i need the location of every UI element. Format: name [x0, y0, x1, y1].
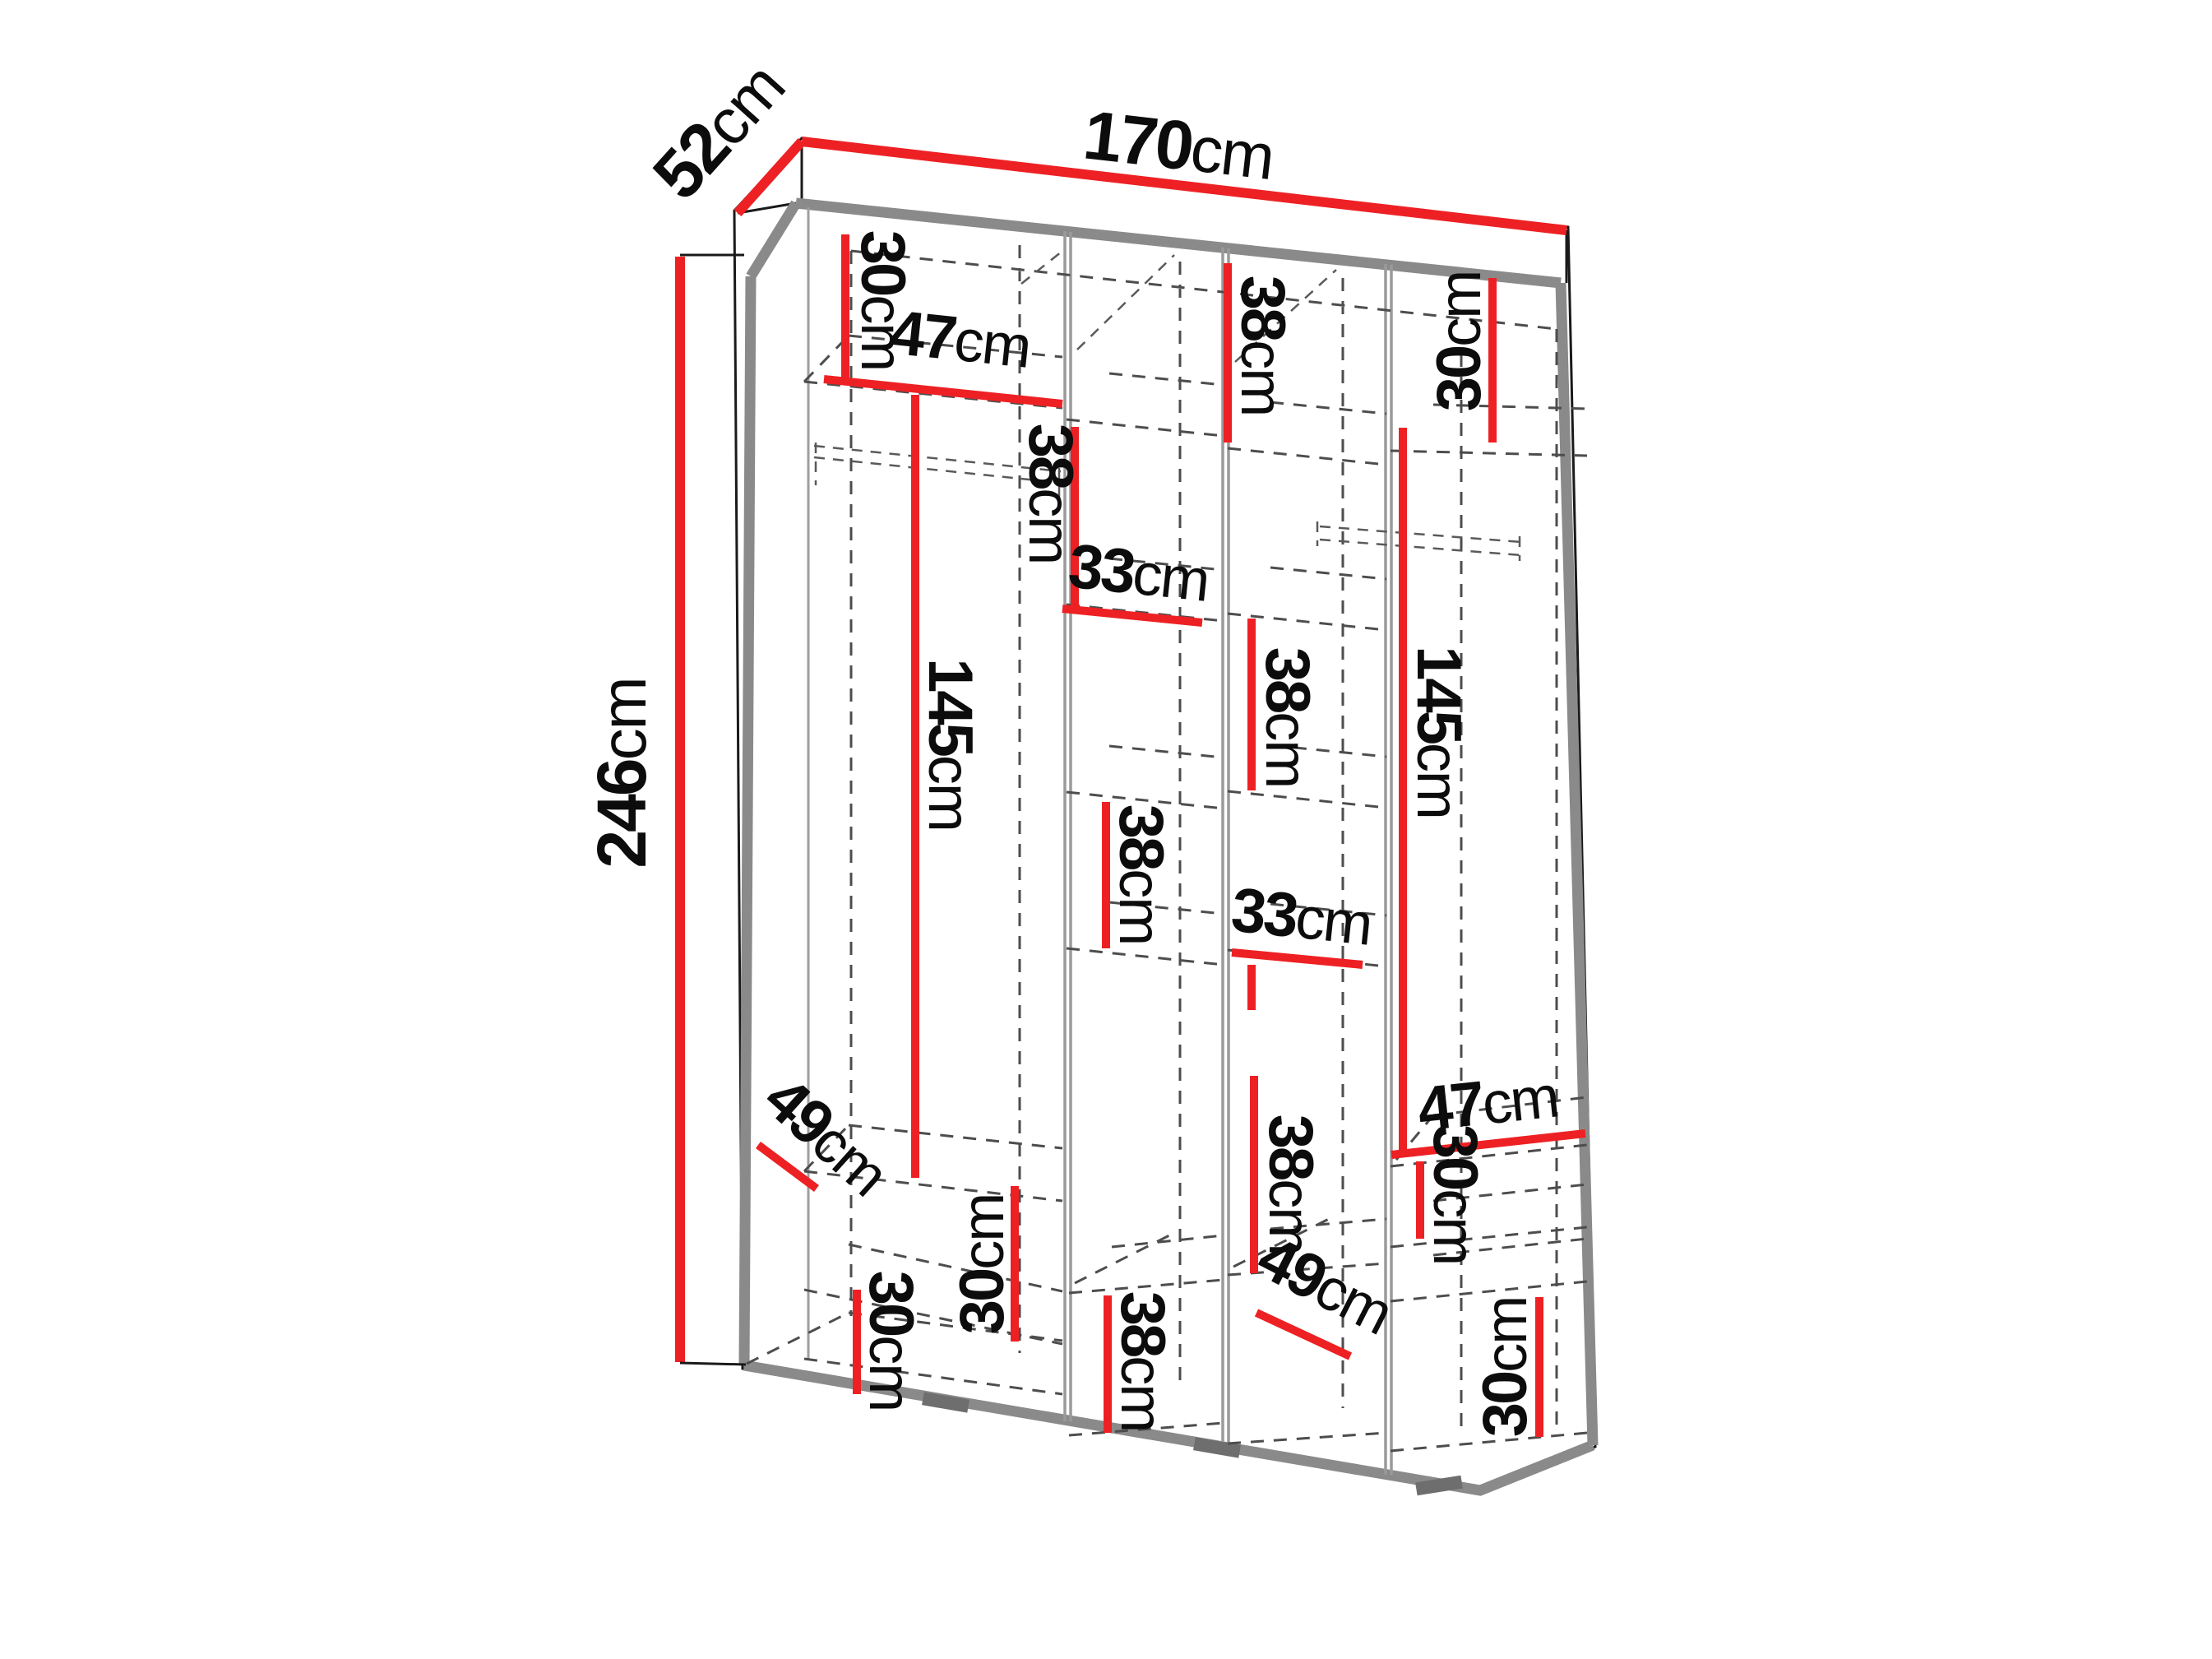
dim-label-c4-bottom: 30cm — [1470, 1297, 1540, 1438]
wardrobe-diagram: 170cm 52cm 246cm 30cm 47cm 145cm 49cm 30… — [0, 0, 2212, 1659]
dim-label-c2-bottom: 38cm — [1108, 1291, 1178, 1432]
dim-label-c4-hanging: 145cm — [1404, 646, 1474, 818]
dim-label-c1-bottom: 30cm — [856, 1271, 926, 1411]
dim-label-c3-top: 38cm — [1228, 276, 1298, 416]
diagram-page: 170cm 52cm 246cm 30cm 47cm 145cm 49cm 30… — [0, 0, 2212, 1659]
dim-label-height: 246cm — [583, 678, 660, 868]
dim-label-c4-middle: 30cm — [1420, 1124, 1490, 1265]
dim-label-c2-middle: 38cm — [1106, 804, 1176, 945]
dim-label-c3-upper: 38cm — [1252, 647, 1322, 788]
dim-label-c1-hanging: 145cm — [915, 658, 985, 831]
dim-label-c1-lower: 30cm — [947, 1194, 1017, 1335]
dim-label-c4-top: 30cm — [1424, 271, 1494, 412]
